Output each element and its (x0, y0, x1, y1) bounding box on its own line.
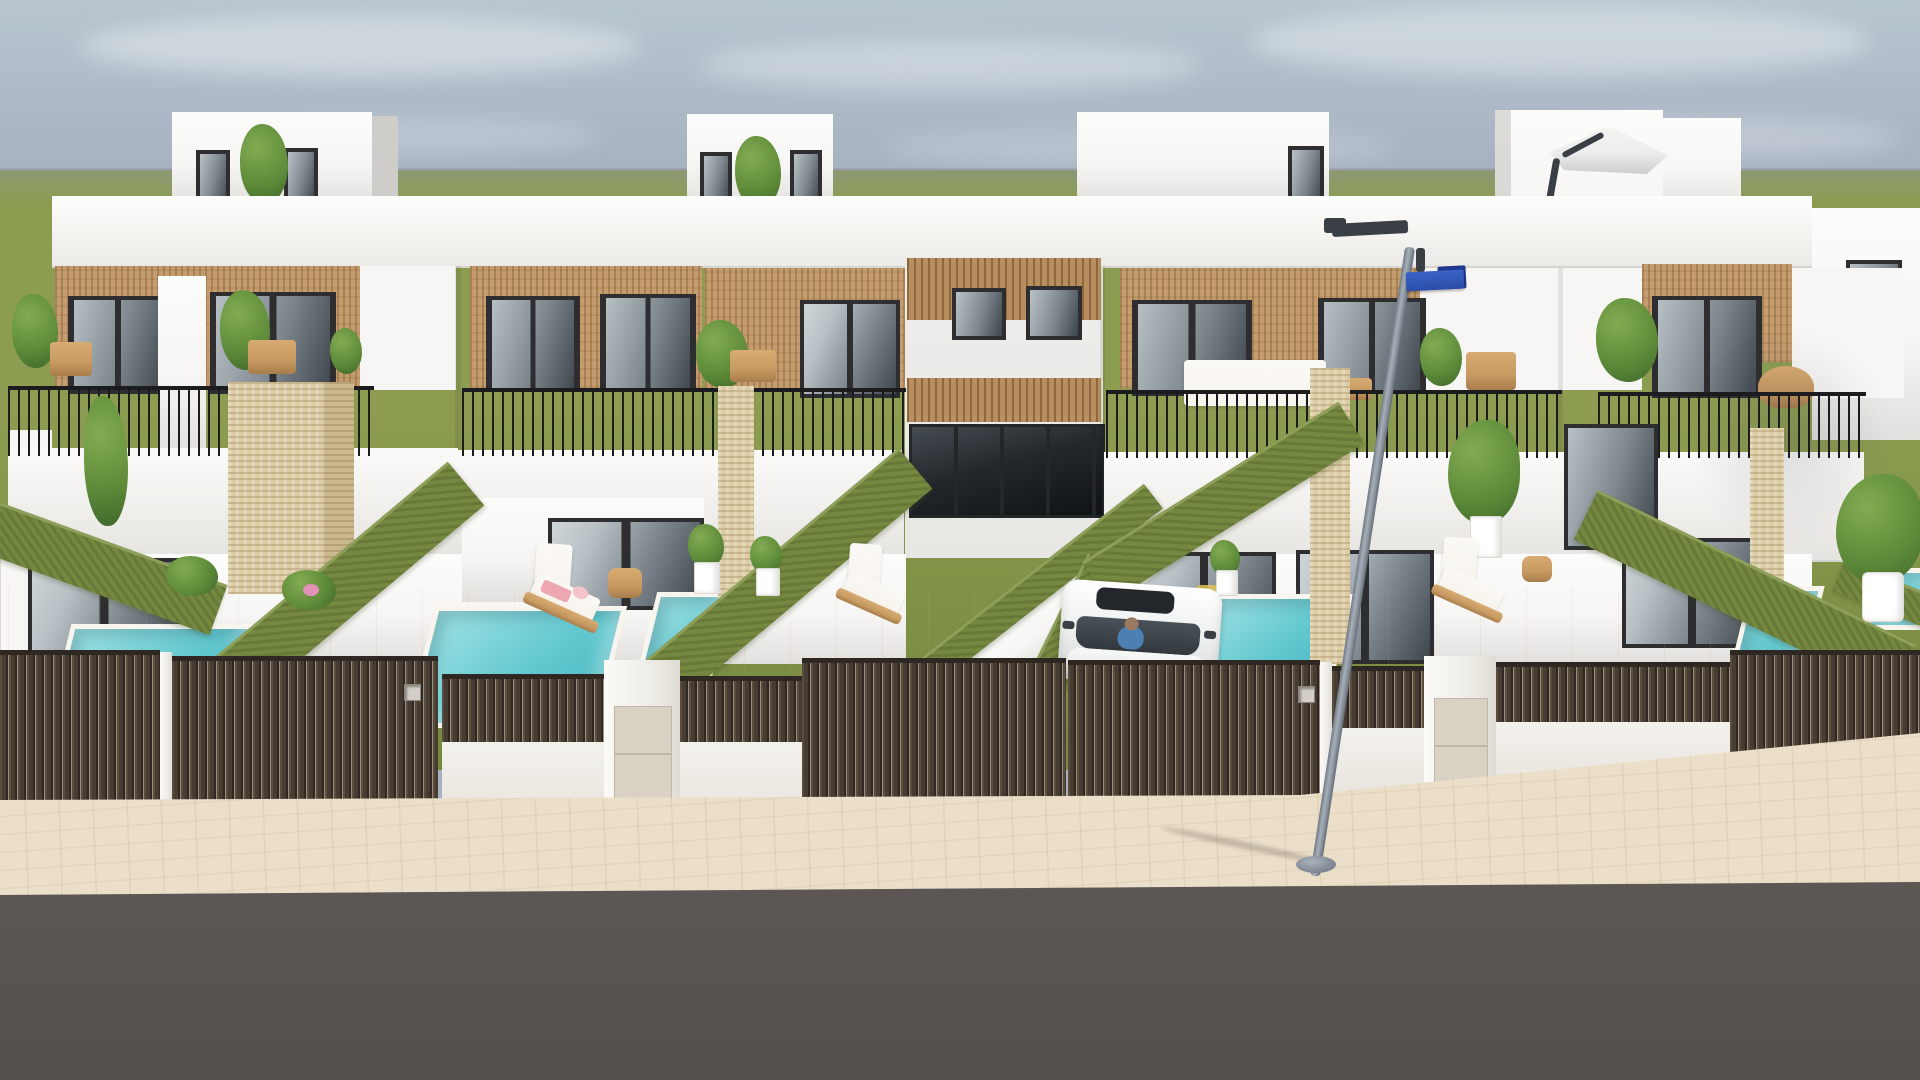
fence-panel (442, 674, 604, 749)
mailbox-panel (1434, 698, 1488, 746)
street-name-sign (1406, 269, 1465, 291)
fence-panel (680, 676, 802, 749)
car-mirror (1062, 621, 1075, 630)
lamp-base (1296, 856, 1336, 873)
travertine-pillar (718, 386, 754, 602)
planter-pot (1862, 572, 1904, 622)
balcony-plant (1420, 328, 1462, 386)
rooftop-box-1-side (372, 116, 398, 206)
balcony-railing (462, 388, 906, 456)
lamp-head-cap (1324, 218, 1346, 233)
house-2-window (600, 294, 696, 392)
planter-pot (694, 562, 720, 594)
palm-plant (1448, 420, 1520, 524)
house-2-window (486, 296, 580, 392)
side-stool (608, 568, 642, 598)
fern (166, 556, 218, 596)
palm-plant (1836, 474, 1920, 584)
side-stool (1522, 556, 1552, 582)
rattan-chair (50, 342, 92, 376)
pink-flower (303, 584, 319, 596)
fence-panel (1496, 662, 1730, 729)
sign-bracket (1416, 248, 1425, 272)
house-number-plaque (1298, 686, 1315, 703)
entry-window (1026, 286, 1082, 340)
entry-window (952, 288, 1006, 340)
car-mirror (1204, 630, 1217, 639)
house-1-side-return (360, 266, 456, 390)
cloud (80, 16, 640, 76)
cloud (700, 40, 1200, 90)
cloud (1250, 6, 1870, 76)
planter-pot (756, 568, 780, 596)
rattan-chair (1466, 352, 1516, 390)
balcony-plant (1596, 298, 1658, 382)
travertine-pillar (228, 382, 324, 594)
mailbox-panel (614, 706, 672, 754)
rattan-chair (248, 340, 296, 374)
render-canvas (0, 0, 1920, 1080)
entry-timber-band-lower (907, 378, 1101, 422)
house-2-balcony-door (800, 300, 900, 398)
entry-doors (909, 424, 1105, 518)
meter-panel (614, 754, 672, 804)
house-number-plaque (404, 684, 421, 701)
rattan-chair (730, 350, 776, 382)
balcony-plant (330, 328, 362, 374)
rooftop-plant (240, 124, 288, 204)
